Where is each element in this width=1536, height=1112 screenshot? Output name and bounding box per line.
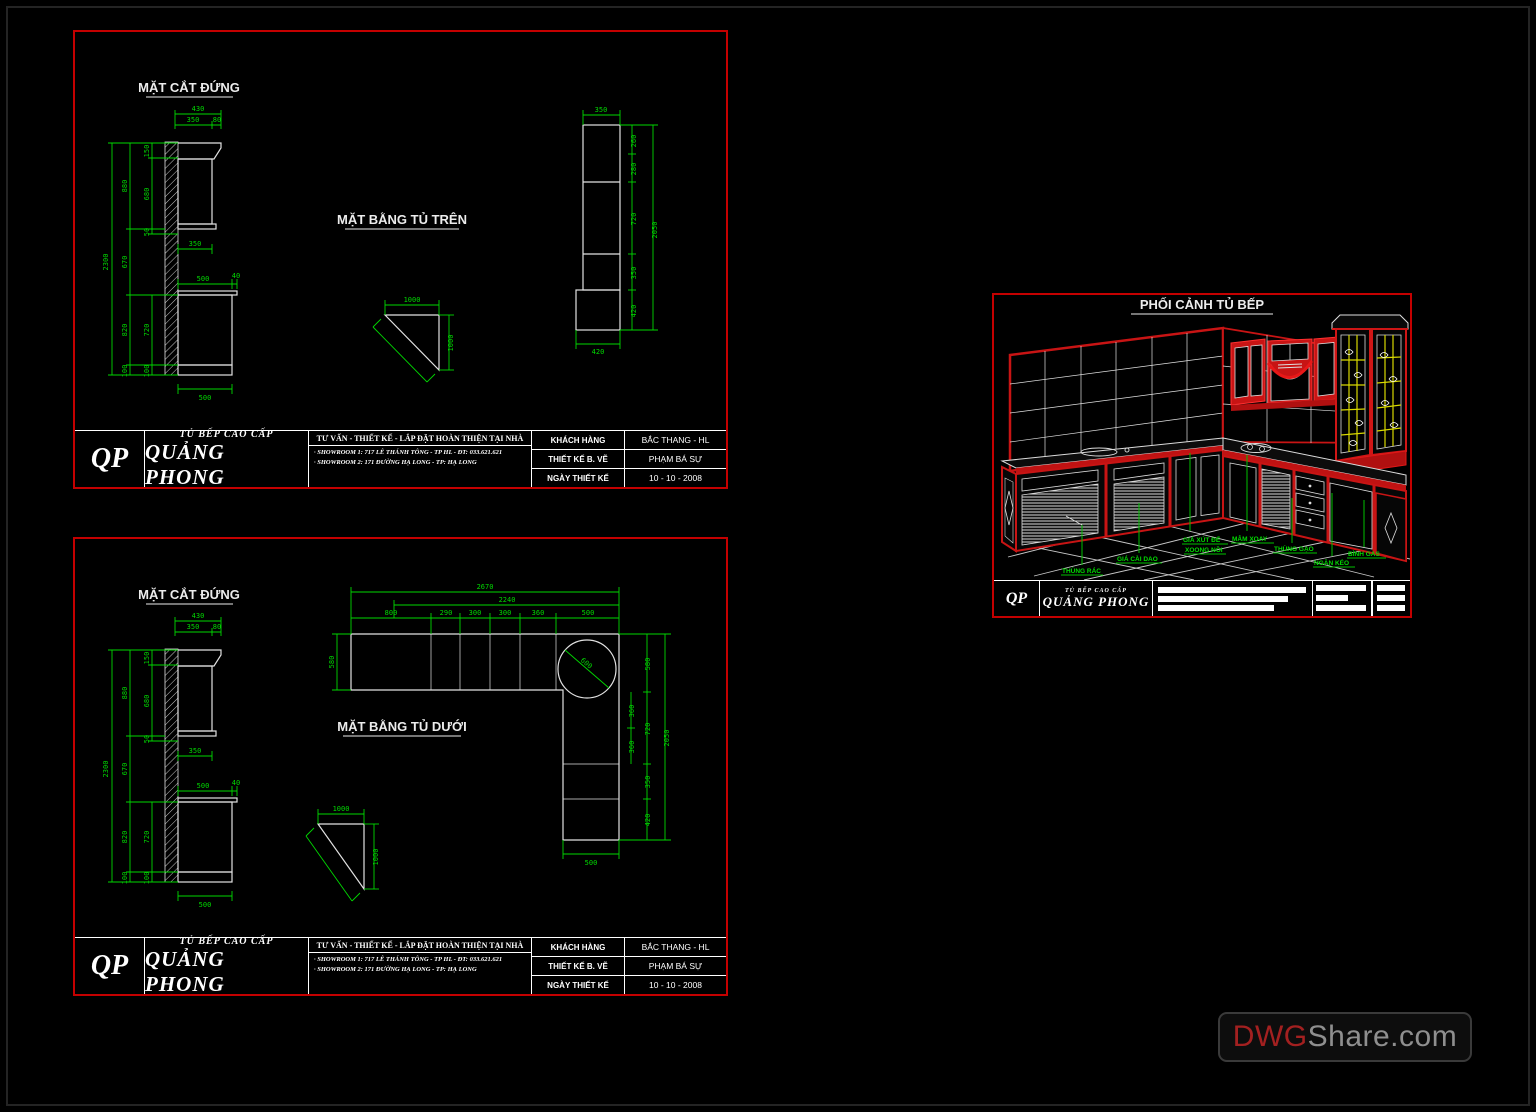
showroom-1: · SHOWROOM 1: 717 LÊ THÁNH TÔNG - TP HL … xyxy=(309,953,531,963)
dim: 1000 xyxy=(404,296,421,304)
redacted-info xyxy=(1153,581,1313,616)
dim: 50 xyxy=(143,735,151,743)
table-row: KHÁCH HÀNG BẮC THANG - HL xyxy=(532,938,726,957)
redacted-cell xyxy=(1316,585,1366,591)
grid-line xyxy=(1371,581,1373,616)
service-line: TƯ VẤN - THIẾT KẾ - LẮP ĐẶT HOÀN THIỆN T… xyxy=(309,938,531,953)
dim: 2670 xyxy=(477,583,494,591)
watermark-suffix: Share.com xyxy=(1308,1020,1458,1054)
dim: 880 xyxy=(121,687,129,700)
table-row: KHÁCH HÀNG BẮC THANG - HL xyxy=(532,431,726,450)
dim: 420 xyxy=(630,305,638,318)
dim: 680 xyxy=(143,695,151,708)
dim: 500 xyxy=(585,859,598,867)
row-value: 10 - 10 - 2008 xyxy=(625,976,726,994)
dim: 100 xyxy=(143,365,151,378)
dim: 150 xyxy=(143,145,151,158)
dim: 40 xyxy=(232,272,240,280)
perspective-title: PHỐI CẢNH TỦ BẾP xyxy=(1140,297,1265,312)
dim: 720 xyxy=(630,213,638,226)
dim: 1000 xyxy=(333,805,350,813)
corner-unit-detail: 1000 1000 xyxy=(373,296,455,382)
dim: 720 xyxy=(143,831,151,844)
label-pot-rack-line1: GIÁ XÚT ĐỂ xyxy=(1183,535,1221,544)
table-row: THIẾT KẾ B. VẼ PHẠM BÁ SỰ xyxy=(532,957,726,976)
dim: 300 xyxy=(499,609,512,617)
section-title: MẶT CẮT ĐỨNG xyxy=(138,80,240,95)
brand-tagline: TỦ BẾP CAO CẤP xyxy=(180,429,274,440)
redacted-bar xyxy=(1158,596,1288,602)
dim: 80 xyxy=(213,116,221,124)
dwgshare-watermark: DWGShare.com xyxy=(1218,1012,1472,1062)
project-info: KHÁCH HÀNG BẮC THANG - HL THIẾT KẾ B. VẼ… xyxy=(532,938,726,994)
dim: 350 xyxy=(187,116,200,124)
redacted-cell xyxy=(1316,595,1348,601)
dim: 100 xyxy=(143,872,151,885)
project-info: KHÁCH HÀNG BẮC THANG - HL THIẾT KẾ B. VẼ… xyxy=(532,431,726,487)
dim: 2240 xyxy=(499,596,516,604)
redacted-bar xyxy=(1158,605,1274,611)
dim: 500 xyxy=(199,394,212,402)
dim: 1000 xyxy=(372,849,380,866)
label-drawer: NGĂN KÉO xyxy=(1314,558,1349,567)
sheet-lower-cabinets: MẶT CẮT ĐỨNG 430 350 80 2300 8 xyxy=(73,537,728,996)
company-name: TỦ BẾP CAO CẤP QUẢNG PHONG xyxy=(145,938,309,994)
section-title: MẶT CẮT ĐỨNG xyxy=(138,587,240,602)
brand-name: QUẢNG PHONG xyxy=(145,947,308,997)
dim: 670 xyxy=(121,763,129,776)
row-value: PHẠM BÁ SỰ xyxy=(625,957,726,975)
dim: 2050 xyxy=(663,730,671,747)
label-rotating-tray: MÂM XOAY xyxy=(1232,534,1268,543)
dim: 500 xyxy=(582,609,595,617)
dim: 2300 xyxy=(102,761,110,778)
dim: 260 xyxy=(630,135,638,148)
dim: 720 xyxy=(143,324,151,337)
dim: 670 xyxy=(121,256,129,269)
row-value: PHẠM BÁ SỰ xyxy=(625,450,726,468)
company-logo: QP xyxy=(75,431,145,487)
dim: 1000 xyxy=(447,335,455,352)
dim: 430 xyxy=(192,612,205,620)
dim: 420 xyxy=(644,814,652,827)
row-label: THIẾT KẾ B. VẼ xyxy=(532,450,625,468)
plan-title: MẶT BẰNG TỦ DƯỚI xyxy=(337,719,466,734)
dim: 500 xyxy=(197,275,210,283)
dim: 500 xyxy=(197,782,210,790)
row-value: 10 - 10 - 2008 xyxy=(625,469,726,487)
title-block: QP TỦ BẾP CAO CẤP QUẢNG PHONG xyxy=(994,580,1410,616)
dim: 100 xyxy=(121,872,129,885)
redacted-grid xyxy=(1313,581,1410,616)
dim: 600 xyxy=(579,656,594,670)
table-row: THIẾT KẾ B. VẼ PHẠM BÁ SỰ xyxy=(532,450,726,469)
dim: 360 xyxy=(628,705,636,718)
elevation-drawing: MẶT CẮT ĐỨNG 430 350 80 2300 8 xyxy=(102,587,240,909)
label-gas-bottle: BÌNH GAS xyxy=(1348,549,1380,558)
dim: 360 xyxy=(628,741,636,754)
table-row: NGÀY THIẾT KẾ 10 - 10 - 2008 xyxy=(532,976,726,994)
dim: 720 xyxy=(644,723,652,736)
dim: 2300 xyxy=(102,254,110,271)
watermark-prefix: DWG xyxy=(1233,1020,1308,1054)
upper-sheet-drawing: MẶT CẮT ĐỨNG 430 350 80 2300 xyxy=(75,32,726,430)
upper-cabinet-plan: 350 420 260 280 720 350 420 2050 xyxy=(576,106,659,356)
showroom-1: · SHOWROOM 1: 717 LÊ THÁNH TÔNG - TP HL … xyxy=(309,446,531,456)
company-info: TƯ VẤN - THIẾT KẾ - LẮP ĐẶT HOÀN THIỆN T… xyxy=(309,431,532,487)
dim: 580 xyxy=(644,658,652,671)
dim: 350 xyxy=(189,747,202,755)
company-info: TƯ VẤN - THIẾT KẾ - LẮP ĐẶT HOÀN THIỆN T… xyxy=(309,938,532,994)
dim: 80 xyxy=(213,623,221,631)
dim: 420 xyxy=(592,348,605,356)
dim: 280 xyxy=(630,163,638,176)
corner-unit-detail: 1000 1000 xyxy=(306,805,380,901)
showroom-2: · SHOWROOM 2: 171 ĐƯỜNG HẠ LONG - TP: HẠ… xyxy=(309,456,531,466)
dim: 50 xyxy=(143,228,151,236)
dim: 350 xyxy=(189,240,202,248)
dim: 360 xyxy=(532,609,545,617)
dim: 300 xyxy=(469,609,482,617)
sheet-perspective: PHỐI CẢNH TỦ BẾP xyxy=(992,293,1412,618)
dim: 820 xyxy=(121,324,129,337)
showroom-2: · SHOWROOM 2: 171 ĐƯỜNG HẠ LONG - TP: HẠ… xyxy=(309,963,531,973)
redacted-cell xyxy=(1377,605,1405,611)
dim: 880 xyxy=(121,180,129,193)
label-rice-bin: THÙNG GẠO xyxy=(1274,544,1314,553)
brand-name: QUẢNG PHONG xyxy=(145,440,308,490)
dim: 150 xyxy=(143,652,151,665)
dim: 350 xyxy=(630,267,638,280)
redacted-cell xyxy=(1316,605,1366,611)
row-label: KHÁCH HÀNG xyxy=(532,431,625,449)
service-line: TƯ VẤN - THIẾT KẾ - LẮP ĐẶT HOÀN THIỆN T… xyxy=(309,431,531,446)
dim: 100 xyxy=(121,365,129,378)
dim: 580 xyxy=(328,656,336,669)
tall-glass-cabinet xyxy=(1332,315,1408,475)
company-logo: QP xyxy=(994,581,1040,616)
row-value: BẮC THANG - HL xyxy=(625,938,726,956)
company-name: TỦ BẾP CAO CẤP QUẢNG PHONG xyxy=(1040,581,1153,616)
dim: 350 xyxy=(187,623,200,631)
label-pot-rack-line2: XOONG NỒI xyxy=(1185,544,1223,554)
dim: 40 xyxy=(232,779,240,787)
dim: 290 xyxy=(440,609,453,617)
brand-name: QUẢNG PHONG xyxy=(1043,594,1150,610)
dim: 820 xyxy=(121,831,129,844)
perspective-drawing: PHỐI CẢNH TỦ BẾP xyxy=(994,295,1410,580)
title-block: QP TỦ BẾP CAO CẤP QUẢNG PHONG TƯ VẤN - T… xyxy=(75,937,726,994)
dim: 2050 xyxy=(651,222,659,239)
redacted-cell xyxy=(1377,585,1405,591)
dim: 350 xyxy=(595,106,608,114)
label-knife-rack: GIÁ CÀI DAO xyxy=(1117,554,1158,563)
label-trash: THÙNG RÁC xyxy=(1062,566,1101,575)
brand-tagline: TỦ BẾP CAO CẤP xyxy=(180,936,274,947)
title-block: QP TỦ BẾP CAO CẤP QUẢNG PHONG TƯ VẤN - T… xyxy=(75,430,726,487)
elevation-drawing: MẶT CẮT ĐỨNG 430 350 80 2300 xyxy=(102,80,240,402)
sheet-upper-cabinets: MẶT CẮT ĐỨNG 430 350 80 2300 xyxy=(73,30,728,489)
plan-title: MẶT BẰNG TỦ TRÊN xyxy=(337,212,467,227)
dim: 430 xyxy=(192,105,205,113)
row-value: BẮC THANG - HL xyxy=(625,431,726,449)
row-label: NGÀY THIẾT KẾ xyxy=(532,469,625,487)
dim: 350 xyxy=(644,776,652,789)
company-logo: QP xyxy=(75,938,145,994)
table-row: NGÀY THIẾT KẾ 10 - 10 - 2008 xyxy=(532,469,726,487)
dim: 680 xyxy=(143,188,151,201)
redacted-bar xyxy=(1158,587,1306,593)
lower-sheet-drawing: MẶT CẮT ĐỨNG 430 350 80 2300 8 xyxy=(75,539,726,937)
row-label: KHÁCH HÀNG xyxy=(532,938,625,956)
company-name: TỦ BẾP CAO CẤP QUẢNG PHONG xyxy=(145,431,309,487)
redacted-cell xyxy=(1377,595,1405,601)
row-label: THIẾT KẾ B. VẼ xyxy=(532,957,625,975)
row-label: NGÀY THIẾT KẾ xyxy=(532,976,625,994)
wall-cabinets xyxy=(1231,337,1338,411)
dim: 800 xyxy=(385,609,398,617)
dim: 500 xyxy=(199,901,212,909)
